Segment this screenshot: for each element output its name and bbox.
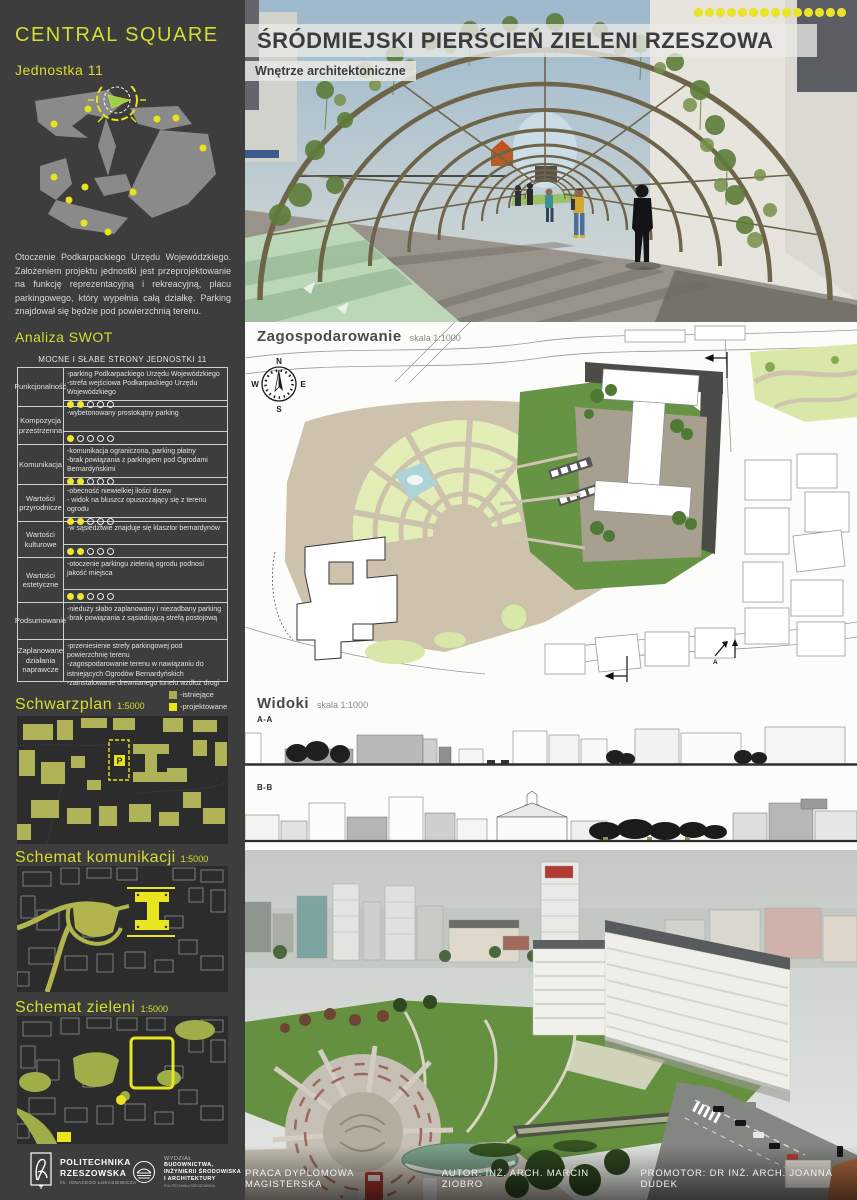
schwarzplan-heading: Schwarzplan1:5000 bbox=[15, 696, 145, 714]
komunikacja-map bbox=[17, 866, 228, 992]
unit-locator-map bbox=[10, 86, 235, 244]
swot-category: Wartości przyrodnicze bbox=[18, 485, 64, 521]
swot-items: -nieduży słabo zaplanowany i niezadbany … bbox=[64, 603, 227, 639]
compass-e: E bbox=[300, 380, 306, 389]
politechnika-subtitle: im. IGNACEGO ŁUKASIEWICZA bbox=[60, 1180, 136, 1185]
plan-scale: skala 1:1000 bbox=[410, 333, 461, 343]
rating-dot-empty bbox=[87, 548, 94, 555]
rating-dot-empty bbox=[107, 548, 114, 555]
swot-items: -w sąsiedztwie znajduje się klasztor ber… bbox=[64, 522, 227, 544]
views-section: Widokiskala 1:1000 A-A bbox=[245, 692, 857, 850]
views-heading: Widokiskala 1:1000 bbox=[257, 695, 368, 712]
schwarzplan-title: Schwarzplan bbox=[15, 696, 112, 713]
swot-items: -otoczenie parkingu zielenią ogrodu podn… bbox=[64, 558, 227, 589]
rating-dot-empty bbox=[107, 435, 114, 442]
komunikacja-scale: 1:5000 bbox=[181, 854, 209, 864]
rating-dot-filled bbox=[67, 435, 74, 442]
page-title: CENTRAL SQUARE bbox=[15, 24, 219, 47]
table-row: Wartości kulturowe -w sąsiedztwie znajdu… bbox=[18, 522, 227, 558]
rating-dot-filled bbox=[77, 593, 84, 600]
rating-dot-empty bbox=[87, 593, 94, 600]
footer-thesis-type: PRACA DYPLOMOWA MAGISTERSKA bbox=[245, 1168, 422, 1190]
rating-dot-filled bbox=[67, 593, 74, 600]
legend-projected-label: -projektowane bbox=[180, 702, 227, 711]
header-dot bbox=[771, 8, 780, 17]
zielen-scale: 1:5000 bbox=[140, 1004, 168, 1014]
table-row: Kompozycja przestrzenna -wybetonowany pr… bbox=[18, 407, 227, 445]
rating-dot-filled bbox=[77, 478, 84, 485]
rating-dot-empty bbox=[97, 548, 104, 555]
swot-rating bbox=[64, 477, 227, 485]
swot-category: Kompozycja przestrzenna bbox=[18, 407, 64, 444]
zielen-map bbox=[17, 1016, 228, 1144]
komunikacja-heading: Schemat komunikacji1:5000 bbox=[15, 849, 208, 867]
header-dot bbox=[749, 8, 758, 17]
swot-category: Podsumowanie bbox=[18, 603, 64, 639]
header-dot bbox=[716, 8, 725, 17]
header-dot bbox=[815, 8, 824, 17]
komunikacja-title: Schemat komunikacji bbox=[15, 849, 176, 866]
legend-existing-swatch bbox=[169, 691, 177, 699]
rating-dot-empty bbox=[97, 435, 104, 442]
table-row: Wartości przyrodnicze -obecność niewielk… bbox=[18, 485, 227, 522]
swot-items: -wybetonowany prostokątny parking bbox=[64, 407, 227, 431]
header-dot bbox=[694, 8, 703, 17]
rating-dot-empty bbox=[107, 593, 114, 600]
politechnika-logo-icon bbox=[30, 1152, 52, 1190]
wydzial-logo-icon bbox=[132, 1160, 156, 1184]
footer-credits: PRACA DYPLOMOWA MAGISTERSKA AUTOR: INŻ. … bbox=[245, 1168, 857, 1190]
table-row: Komunikacja -komunikacja ograniczona, pa… bbox=[18, 445, 227, 485]
wydzial-line4: I ARCHITEKTURY bbox=[164, 1176, 241, 1183]
header-dot bbox=[738, 8, 747, 17]
legend-projected-swatch bbox=[169, 703, 177, 711]
poster-title: ŚRÓDMIEJSKI PIERŚCIEŃ ZIELENI RZESZOWA bbox=[257, 28, 774, 54]
section-letter-a: A bbox=[713, 659, 718, 666]
views-scale: skala 1:1000 bbox=[317, 700, 368, 710]
politechnika-line1: POLITECHNIKA bbox=[60, 1157, 136, 1168]
poster-subtitle: Wnętrze architektoniczne bbox=[255, 64, 406, 78]
header-dot bbox=[760, 8, 769, 17]
swot-category: Komunikacja bbox=[18, 445, 64, 484]
schwarzplan-map: P bbox=[17, 716, 228, 844]
plan-heading: Zagospodarowanieskala 1:1000 bbox=[257, 328, 461, 345]
rating-dot-empty bbox=[77, 435, 84, 442]
unit-label: Jednostka 11 bbox=[15, 62, 103, 78]
wydzial-line3: INŻYNIERII ŚRODOWISKA bbox=[164, 1169, 241, 1176]
swot-category: Zaplanowane działania naprawcze bbox=[18, 640, 64, 681]
header-dot bbox=[837, 8, 846, 17]
unit-description: Otoczenie Podkarpackiego Urzędu Wojewódz… bbox=[15, 251, 231, 319]
rating-dot-empty bbox=[97, 593, 104, 600]
compass-s: S bbox=[276, 405, 282, 414]
rating-dot-filled bbox=[77, 548, 84, 555]
wydzial-subtitle: POLITECHNIKA RZESZOWSKA bbox=[164, 1184, 241, 1188]
zielen-title: Schemat zieleni bbox=[15, 999, 135, 1016]
politechnika-line2: RZESZOWSKA bbox=[60, 1168, 136, 1179]
wydzial-logo-block: WYDZIAŁ BUDOWNICTWA, INŻYNIERII ŚRODOWIS… bbox=[132, 1156, 241, 1188]
header-dot bbox=[727, 8, 736, 17]
politechnika-logo-block: POLITECHNIKA RZESZOWSKA im. IGNACEGO ŁUK… bbox=[30, 1152, 136, 1190]
legend-existing-label: -istniejące bbox=[180, 690, 214, 699]
rating-dot-empty bbox=[97, 478, 104, 485]
swot-category: Funkcjonalność bbox=[18, 368, 64, 406]
aerial-photo bbox=[245, 850, 857, 1200]
views-title: Widoki bbox=[257, 695, 309, 712]
schwarzplan-scale: 1:5000 bbox=[117, 701, 145, 711]
swot-table-header: MOCNE I SŁABE STRONY JEDNOSTKI 11 bbox=[17, 355, 228, 364]
swot-category: Wartości estetyczne bbox=[18, 558, 64, 602]
swot-table: Funkcjonalność -parking Podkarpackiego U… bbox=[17, 367, 228, 682]
swot-rating bbox=[64, 589, 227, 602]
rating-dot-empty bbox=[87, 478, 94, 485]
church-elevation bbox=[497, 791, 567, 841]
table-row: Wartości estetyczne -otoczenie parkingu … bbox=[18, 558, 227, 603]
rating-dot-empty bbox=[107, 478, 114, 485]
elevation-b bbox=[245, 791, 857, 847]
compass-n: N bbox=[276, 357, 282, 366]
table-row: Zaplanowane działania naprawcze -przenie… bbox=[18, 640, 227, 682]
zielen-heading: Schemat zieleni1:5000 bbox=[15, 999, 168, 1017]
site-plan-section: N E S W A bbox=[245, 322, 857, 692]
rating-dot-filled bbox=[67, 548, 74, 555]
header-dot bbox=[826, 8, 835, 17]
header-dot bbox=[705, 8, 714, 17]
poster-title-band: ŚRÓDMIEJSKI PIERŚCIEŃ ZIELENI RZESZOWA bbox=[245, 24, 817, 57]
swot-category: Wartości kulturowe bbox=[18, 522, 64, 557]
swot-rating bbox=[64, 431, 227, 444]
header-dot bbox=[793, 8, 802, 17]
footer-promoter: PROMOTOR: DR INŻ. ARCH. JOANNA DUDEK bbox=[641, 1168, 857, 1190]
header-dot bbox=[782, 8, 791, 17]
parking-letter: P bbox=[116, 756, 122, 766]
plan-title: Zagospodarowanie bbox=[257, 328, 402, 345]
legend-existing: -istniejące bbox=[169, 690, 239, 699]
footer-author: AUTOR: INŻ. ARCH. MARCIN ZIOBRO bbox=[442, 1168, 621, 1190]
poster-subtitle-band: Wnętrze architektoniczne bbox=[245, 61, 416, 81]
header-dots bbox=[694, 8, 846, 17]
swot-items: -obecność niewielkiej ilości drzew - wid… bbox=[64, 485, 227, 517]
swot-rating bbox=[64, 544, 227, 557]
table-row: Podsumowanie -nieduży słabo zaplanowany … bbox=[18, 603, 227, 640]
table-row: Funkcjonalność -parking Podkarpackiego U… bbox=[18, 368, 227, 407]
swot-items: -parking Podkarpackiego Urzędu Wojewódzk… bbox=[64, 368, 227, 400]
elevation-a bbox=[245, 723, 857, 769]
poster: CENTRAL SQUARE Jednostka 11 bbox=[0, 0, 857, 1200]
compass-w: W bbox=[251, 380, 259, 389]
legend-projected: -projektowane bbox=[169, 702, 239, 711]
swot-heading: Analiza SWOT bbox=[15, 329, 113, 345]
header-dot bbox=[804, 8, 813, 17]
swot-items: -komunikacja ograniczona, parking płatny… bbox=[64, 445, 227, 477]
site-plan-drawing: N E S W A bbox=[245, 322, 857, 692]
rating-dot-filled bbox=[67, 478, 74, 485]
swot-items: -przeniesienie strefy parkingowej pod po… bbox=[64, 640, 227, 690]
rating-dot-empty bbox=[87, 435, 94, 442]
